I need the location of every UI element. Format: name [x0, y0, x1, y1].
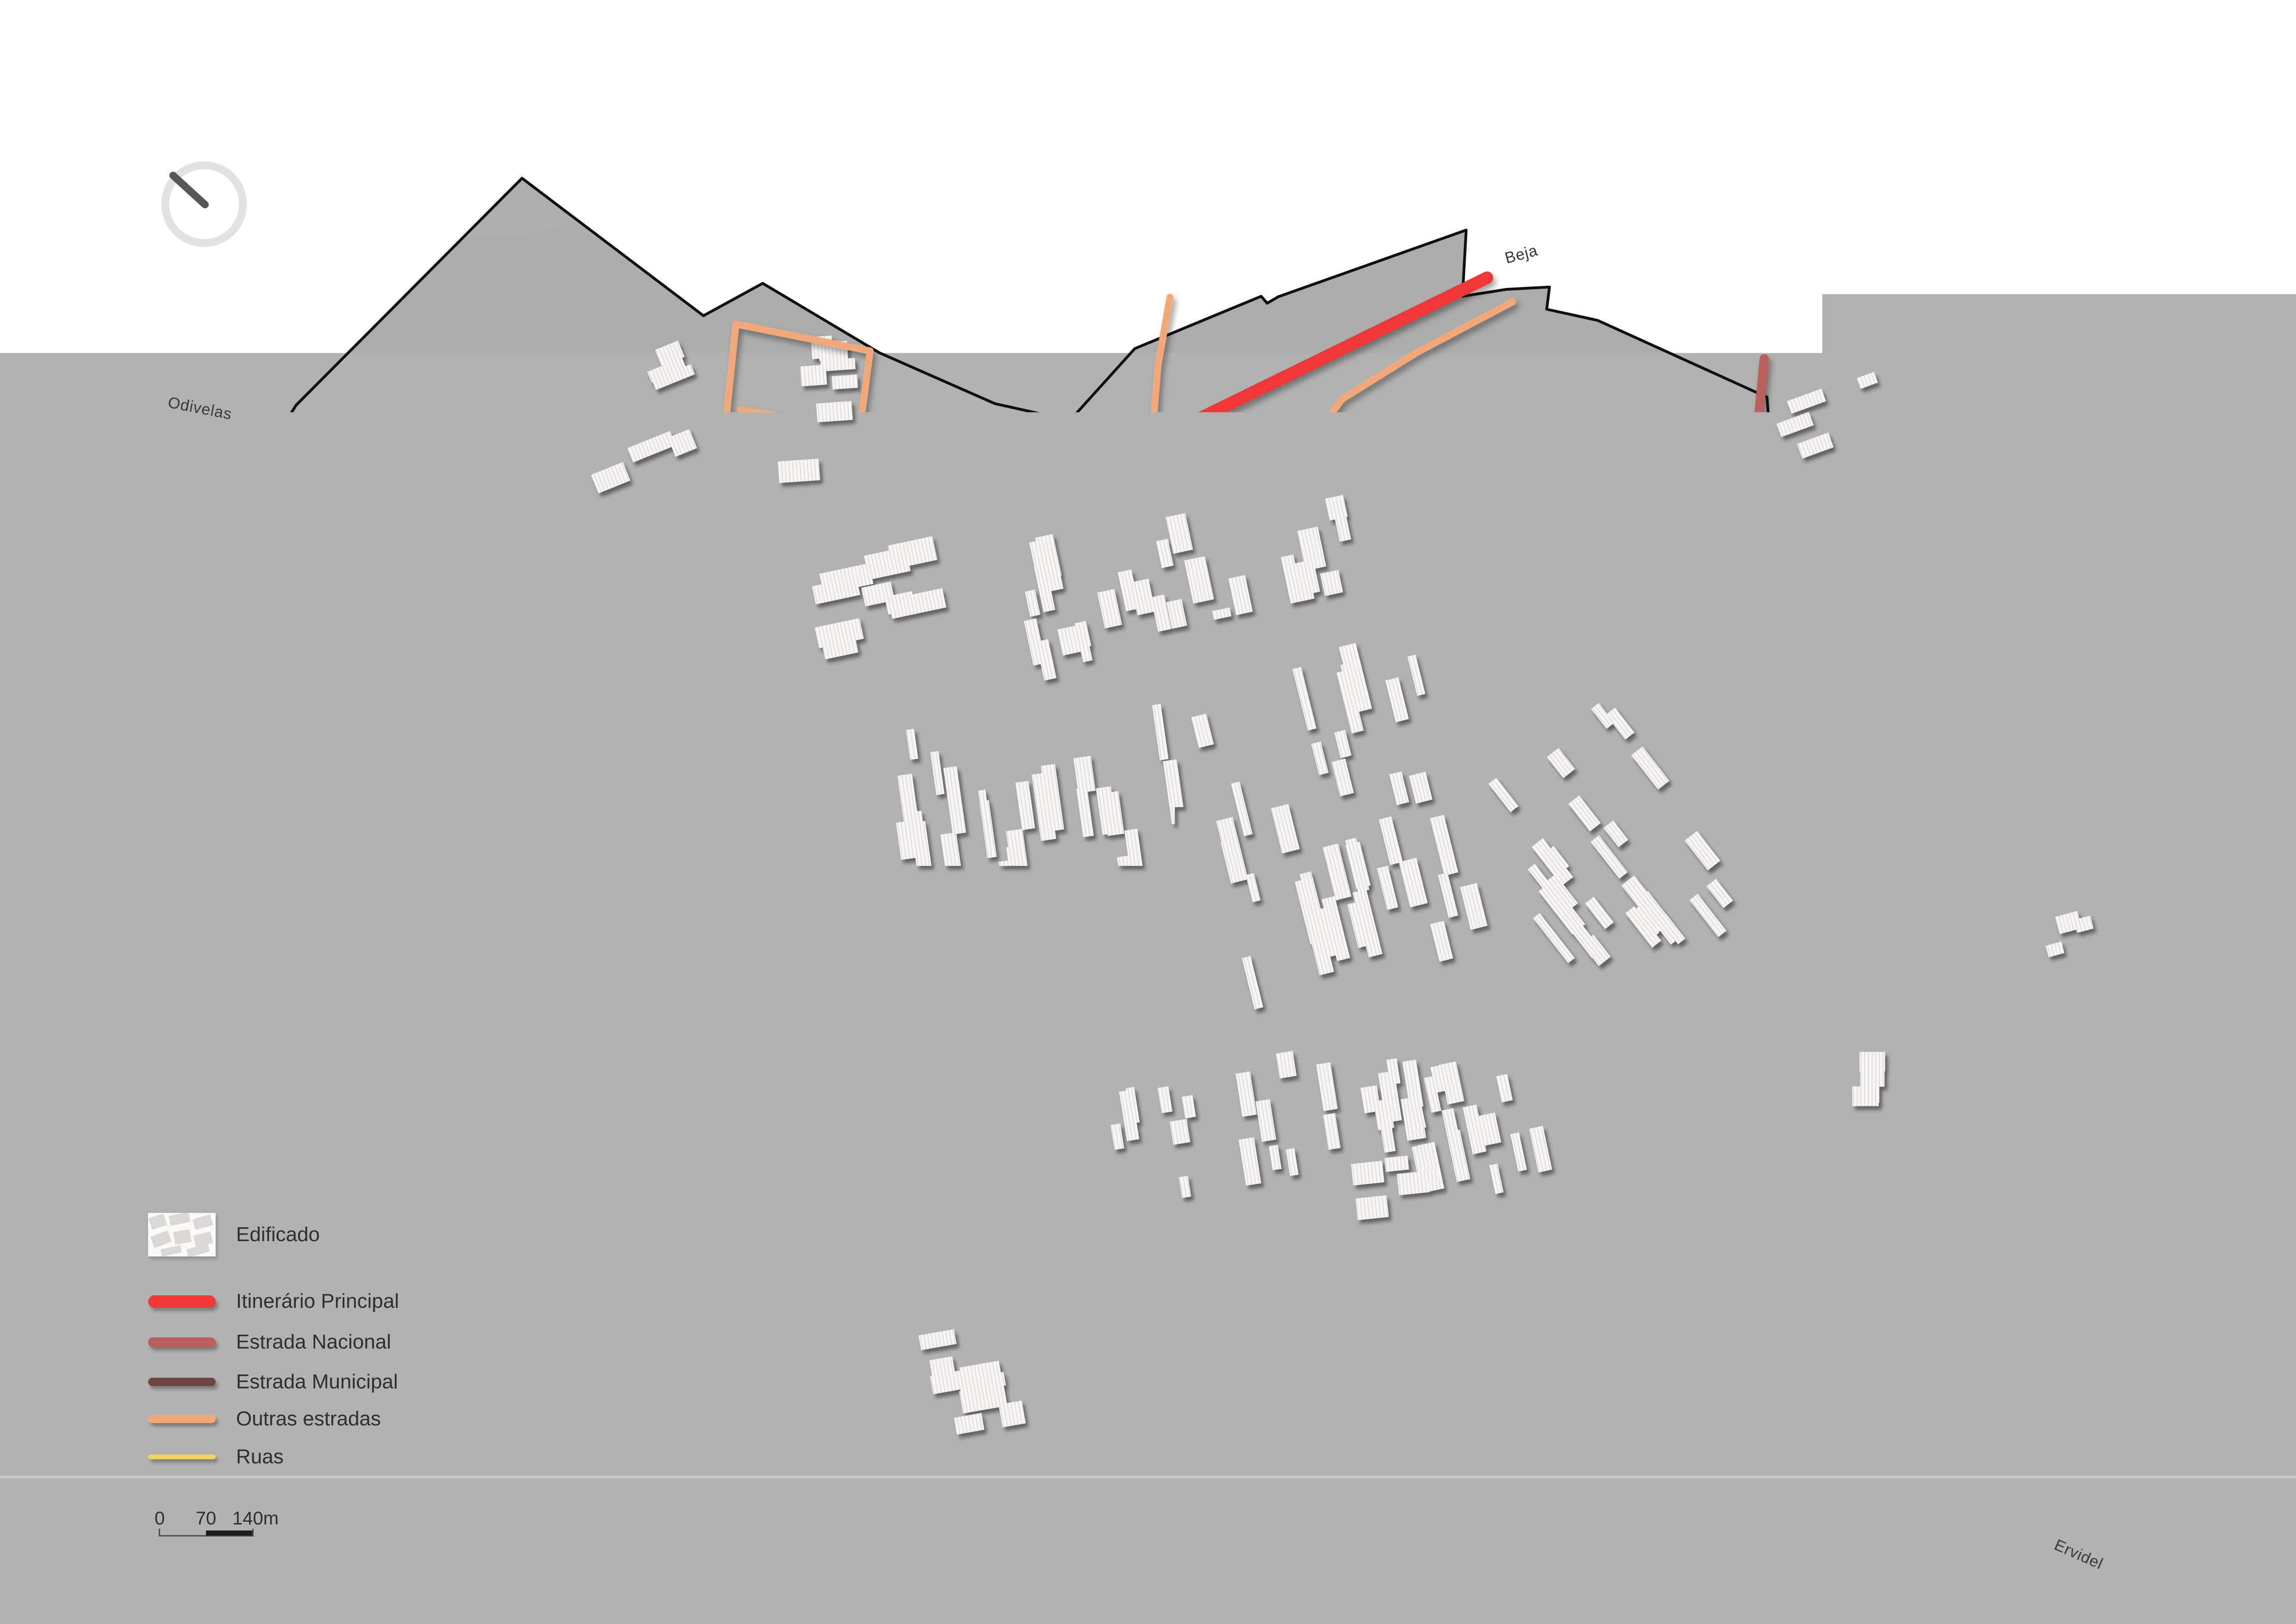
- itinerario-principal-swatch: [148, 1295, 216, 1308]
- building: [800, 365, 827, 387]
- legend-label: Ruas: [236, 1445, 284, 1468]
- scale-label-70: 70: [196, 1508, 217, 1529]
- scale-label-140: 140m: [232, 1508, 279, 1529]
- map-label-grandola: Grândola: [250, 856, 320, 897]
- legend-item-edificado: Edificado: [148, 1213, 320, 1256]
- scale-bar-tick: [159, 1529, 160, 1537]
- building: [1857, 372, 1878, 389]
- roundabout: [1308, 1168, 1328, 1188]
- legend-label: Edificado: [236, 1223, 320, 1246]
- legend-item-outras-estradas: Outras estradas: [148, 1407, 381, 1430]
- north-arrow-icon: [165, 165, 243, 243]
- building: [1397, 1171, 1430, 1195]
- legend-item-itinerario-principal: Itinerário Principal: [148, 1290, 399, 1313]
- estrada-nacional-swatch: [148, 1337, 216, 1347]
- page: { "colors": { "itinerario_principal": "#…: [0, 0, 2296, 1624]
- building: [832, 375, 858, 389]
- building: [1787, 388, 1826, 413]
- roundabout: [878, 893, 903, 918]
- legend-label: Estrada Municipal: [236, 1370, 398, 1393]
- map-label-beja: Beja: [1503, 242, 1539, 267]
- edificado-patch-icon: [148, 1213, 216, 1256]
- stadium: [1680, 1176, 1814, 1274]
- scale-bar-tick: [252, 1529, 254, 1537]
- legend-label: Outras estradas: [236, 1407, 381, 1430]
- map-label-ervidel: Ervidel: [2052, 1536, 2106, 1573]
- legend-label: Estrada Nacional: [236, 1330, 391, 1354]
- footer-divider: [0, 1476, 2296, 1478]
- building: [1351, 1161, 1384, 1186]
- ruas-swatch: [148, 1455, 216, 1459]
- map-label-canhestros: Canhestros: [1219, 1413, 1262, 1500]
- estrada-municipal-swatch: [148, 1378, 216, 1386]
- scale-bar: 0 70 140m: [148, 1508, 287, 1545]
- building: [1860, 1070, 1885, 1087]
- building: [1137, 928, 1157, 957]
- scale-label-0: 0: [155, 1508, 165, 1529]
- outras-estradas-swatch: [148, 1415, 216, 1423]
- scale-bar-segment: [206, 1530, 253, 1536]
- legend-item-ruas: Ruas: [148, 1445, 284, 1468]
- legend-item-estrada-municipal: Estrada Municipal: [148, 1370, 398, 1393]
- building: [999, 1400, 1026, 1427]
- roundabout: [1280, 1258, 1301, 1279]
- building: [1852, 1087, 1879, 1106]
- legend-item-estrada-nacional: Estrada Nacional: [148, 1330, 391, 1354]
- legend-label: Itinerário Principal: [236, 1290, 399, 1313]
- map-label-odivelas: Odivelas: [167, 394, 234, 423]
